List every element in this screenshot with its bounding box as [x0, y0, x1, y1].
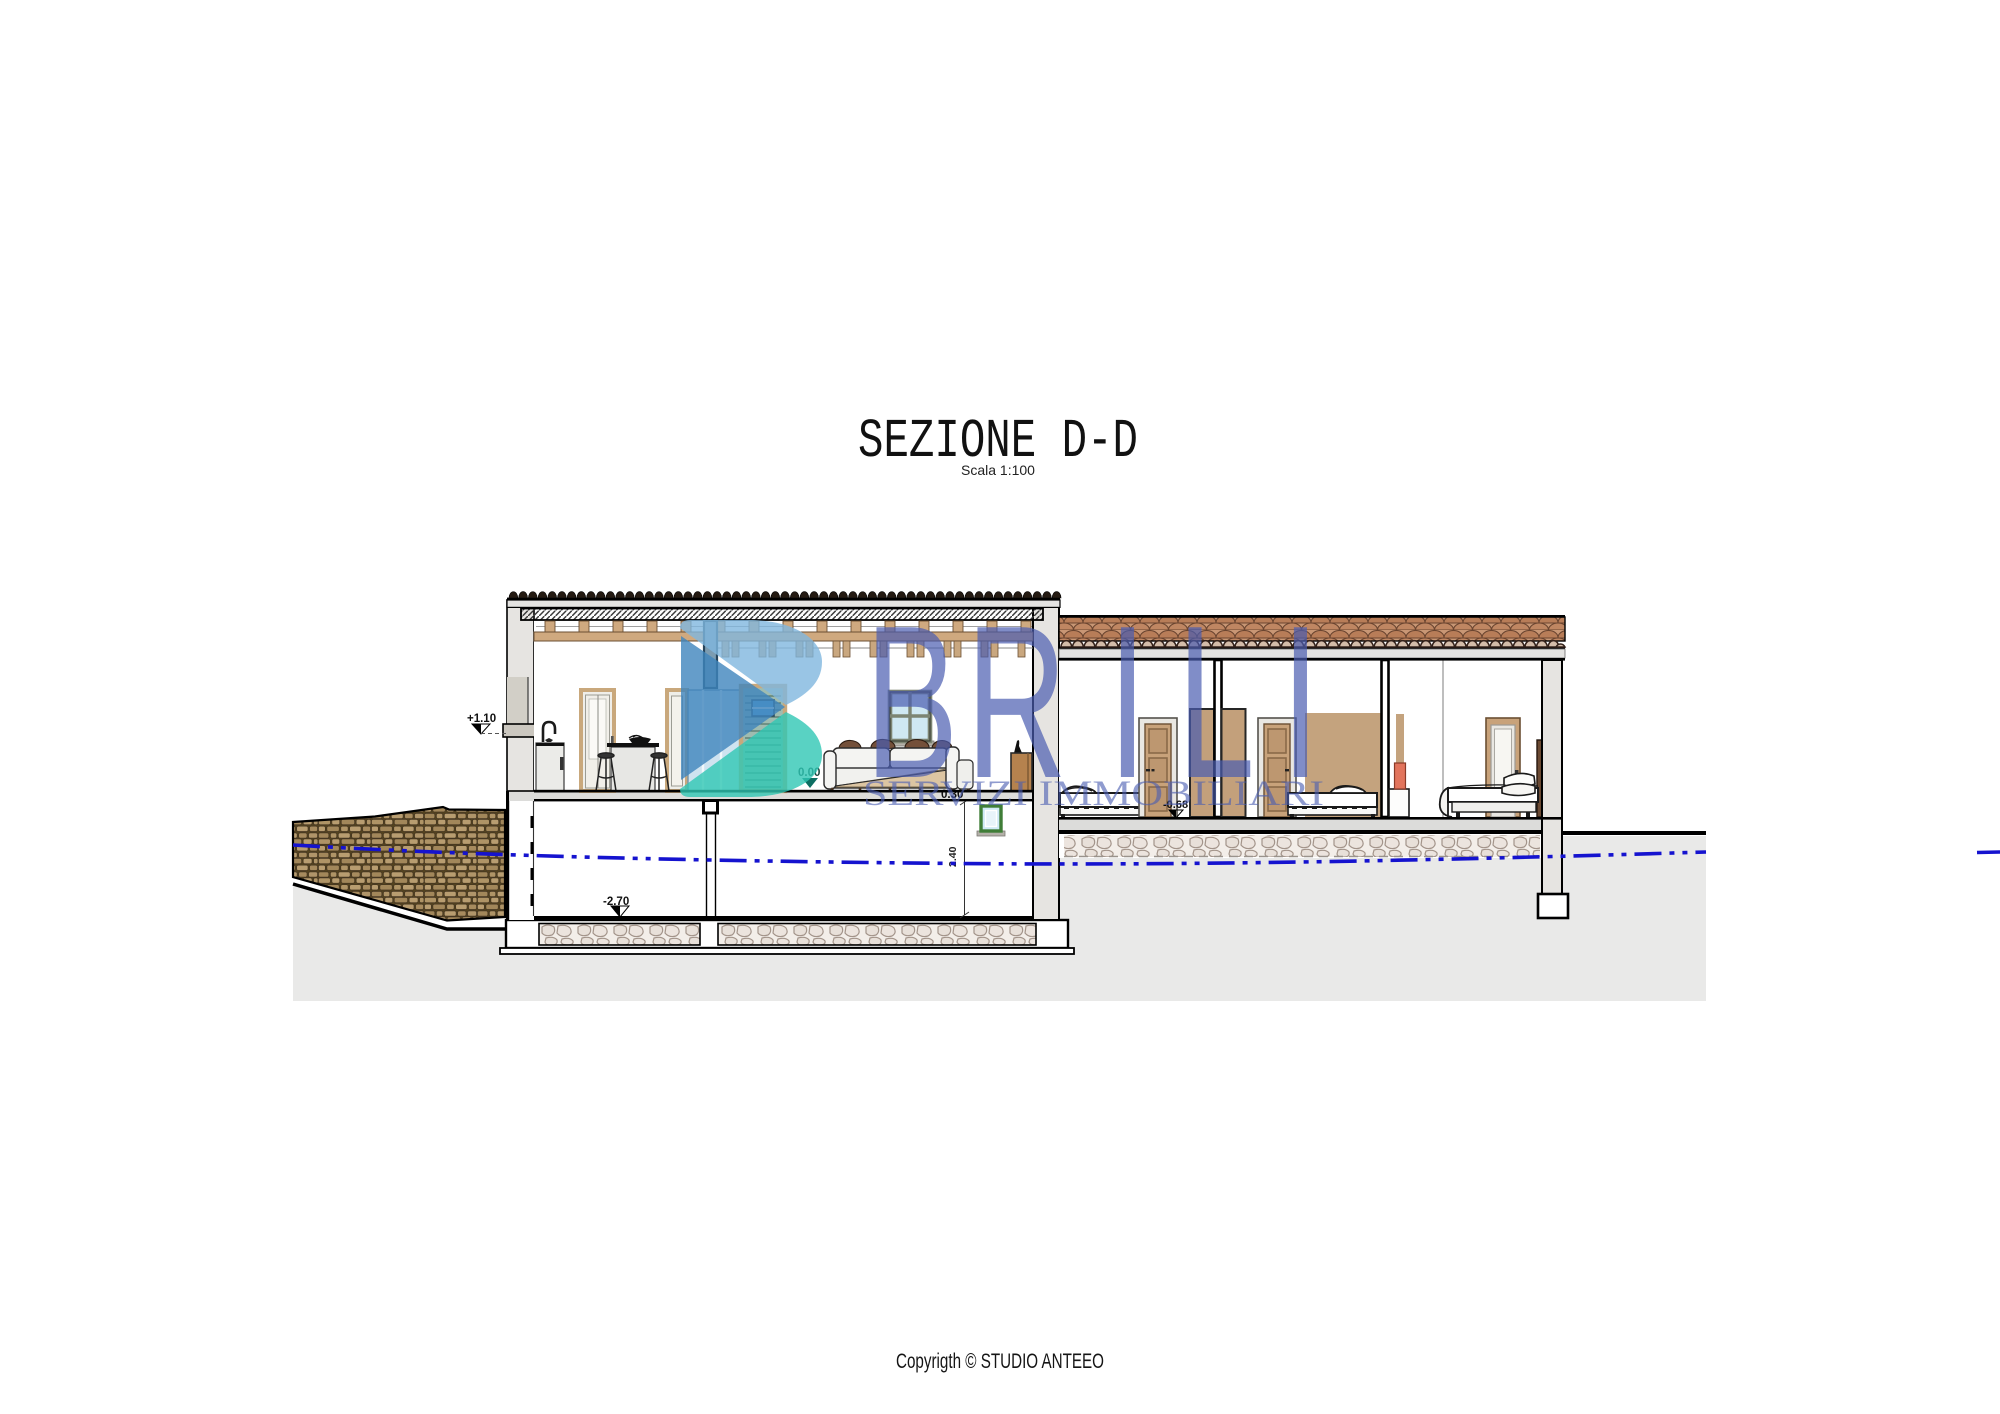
svg-text:+1.10: +1.10 [467, 713, 496, 725]
svg-text:SERVIZI IMMOBILIARI: SERVIZI IMMOBILIARI [863, 773, 1324, 813]
svg-text:Copyrigth © STUDIO ANTEEO: Copyrigth © STUDIO ANTEEO [896, 1350, 1104, 1373]
svg-text:Scala 1:100: Scala 1:100 [961, 462, 1035, 478]
